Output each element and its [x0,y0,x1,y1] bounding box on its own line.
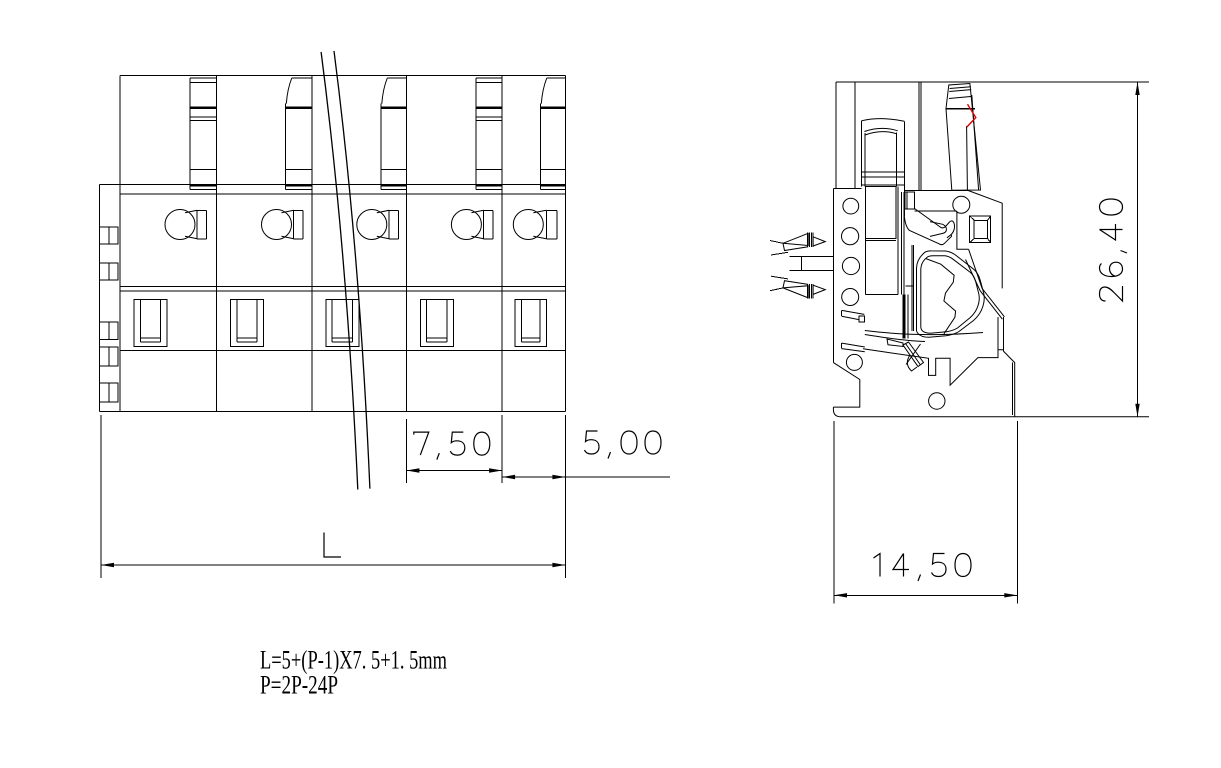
svg-text:P=2P-24P: P=2P-24P [260,671,338,700]
